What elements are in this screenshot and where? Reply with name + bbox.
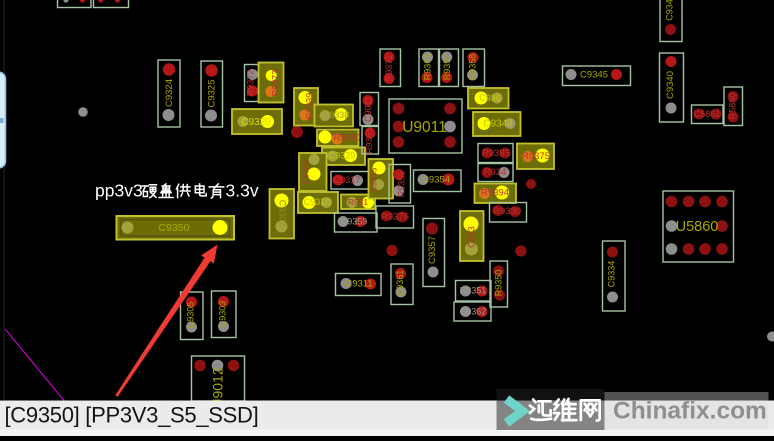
svg-text:C9329: C9329 — [329, 150, 356, 160]
svg-text:C9361: C9361 — [395, 270, 405, 297]
svg-text:C938: C938 — [479, 93, 501, 103]
svg-text:pp3v3: pp3v3 — [95, 181, 143, 201]
svg-text:C9324: C9324 — [164, 79, 175, 107]
svg-text:C9350: C9350 — [159, 222, 190, 234]
svg-text:3.3v: 3.3v — [226, 181, 259, 201]
svg-text:C9345: C9345 — [580, 70, 608, 81]
svg-text:R9375: R9375 — [522, 151, 550, 162]
svg-text:C9334: C9334 — [606, 261, 616, 288]
svg-text:Chinafix.com: Chinafix.com — [613, 397, 767, 424]
svg-text:R9373: R9373 — [270, 70, 280, 97]
svg-text:R9371: R9371 — [384, 55, 394, 82]
svg-text:C9305: C9305 — [185, 302, 195, 329]
svg-text:[C9350] [PP3V3_S5_SSD]: [C9350] [PP3V3_S5_SSD] — [5, 402, 259, 427]
svg-text:C9011: C9011 — [363, 96, 373, 122]
svg-text:C9357: C9357 — [427, 236, 438, 264]
svg-text:C933: C933 — [466, 226, 476, 248]
svg-text:C9348: C9348 — [483, 119, 513, 130]
svg-text:C9354: C9354 — [422, 175, 450, 186]
svg-text:C9359: C9359 — [341, 216, 368, 226]
svg-text:R9357: R9357 — [442, 54, 452, 81]
svg-text:U9011: U9011 — [402, 119, 447, 136]
svg-text:C934: C934 — [664, 0, 674, 21]
svg-text:R9376: R9376 — [381, 212, 409, 223]
svg-text:C9310: C9310 — [304, 197, 331, 207]
svg-text:R9385: R9385 — [482, 148, 510, 159]
svg-text:C9338: C9338 — [323, 110, 350, 120]
svg-text:R934: R934 — [484, 167, 507, 178]
svg-text:C9355: C9355 — [368, 167, 378, 192]
svg-text:R9339: R9339 — [304, 93, 314, 120]
svg-text:R9360: R9360 — [364, 128, 374, 153]
svg-text:C9320: C9320 — [241, 117, 271, 128]
svg-text:C5861: C5861 — [694, 109, 721, 119]
svg-text:C9317: C9317 — [334, 175, 361, 185]
svg-text:R9380: R9380 — [334, 132, 361, 142]
svg-text:R9355: R9355 — [396, 171, 406, 198]
svg-text:R9358: R9358 — [467, 54, 477, 81]
svg-text:R5860: R5860 — [727, 93, 737, 120]
svg-text:R931: R931 — [348, 197, 369, 207]
svg-text:U5860: U5860 — [676, 219, 719, 235]
svg-text:R9330: R9330 — [493, 206, 521, 217]
svg-text:C9340: C9340 — [665, 71, 676, 99]
svg-text:R9372: R9372 — [245, 70, 255, 97]
svg-text:C9303: C9303 — [217, 301, 227, 328]
svg-text:C9302: C9302 — [278, 200, 288, 227]
svg-text:C9301: C9301 — [300, 159, 310, 184]
svg-text:C9362: C9362 — [460, 306, 487, 316]
svg-text:R9394: R9394 — [481, 188, 509, 199]
svg-text:R9363: R9363 — [422, 54, 432, 81]
svg-text:R9351: R9351 — [460, 285, 487, 295]
svg-text:C9311: C9311 — [345, 279, 372, 290]
svg-text:C9325: C9325 — [207, 80, 218, 108]
svg-text:R9350: R9350 — [493, 270, 503, 297]
